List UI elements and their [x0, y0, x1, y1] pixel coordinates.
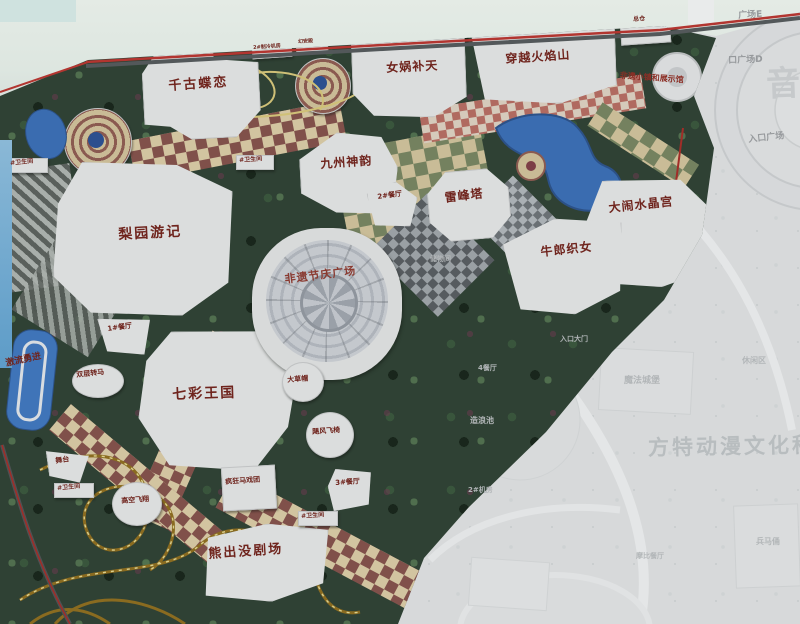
label-jiuzhou-shenyun: 九州神韵 — [320, 154, 373, 170]
label-liyuan-youji: 梨园游记 — [118, 225, 183, 242]
ride-sky-flyer — [112, 482, 162, 526]
red-path-east — [676, 128, 683, 182]
label-park-watermark: 方特动漫文化科技园 — [648, 428, 800, 462]
label-music-watermark: 音 — [765, 55, 800, 105]
label-nuwa-butian: 女娲补天 — [386, 59, 439, 74]
label-mobi-canting: 摩比餐厅 — [636, 553, 664, 560]
river-island-flower — [526, 161, 536, 171]
label-huan-an-dian: 幻安殿 — [298, 39, 313, 45]
label-xiuxian-qu: 休闲区 — [742, 357, 766, 365]
building-restaurant-3 — [327, 467, 374, 512]
label-chuwujian: 储物间 — [430, 256, 451, 263]
label-restaurant-4: 4餐厅 — [478, 365, 497, 372]
building-circus — [221, 465, 277, 512]
label-plaza-e: 广场E — [738, 11, 763, 21]
label-jifang-2: 2#机房 — [468, 487, 493, 494]
label-straw-hat: 大草帽 — [287, 376, 308, 384]
label-rukou-damen: 入口大门 — [560, 336, 588, 343]
label-zaolangchi: 造浪池 — [470, 417, 494, 425]
label-zongcang: 总仓 — [633, 16, 645, 23]
label-mofa-chengbao: 魔法城堡 — [624, 377, 660, 386]
label-qicai-wangguo: 七彩王国 — [172, 386, 236, 402]
park-map-photo: 千古蝶恋 女娲补天 穿越火焰山 九州神韵 雷峰塔 大闹水晶宫 牛郎织女 梨园游记… — [0, 0, 800, 624]
photo-edge-blue — [0, 140, 12, 368]
label-bingmayong: 兵马俑 — [756, 538, 780, 546]
label-plaza-d: 口广场D — [728, 56, 763, 66]
label-qiangu-dielian: 千古蝶恋 — [168, 76, 229, 93]
